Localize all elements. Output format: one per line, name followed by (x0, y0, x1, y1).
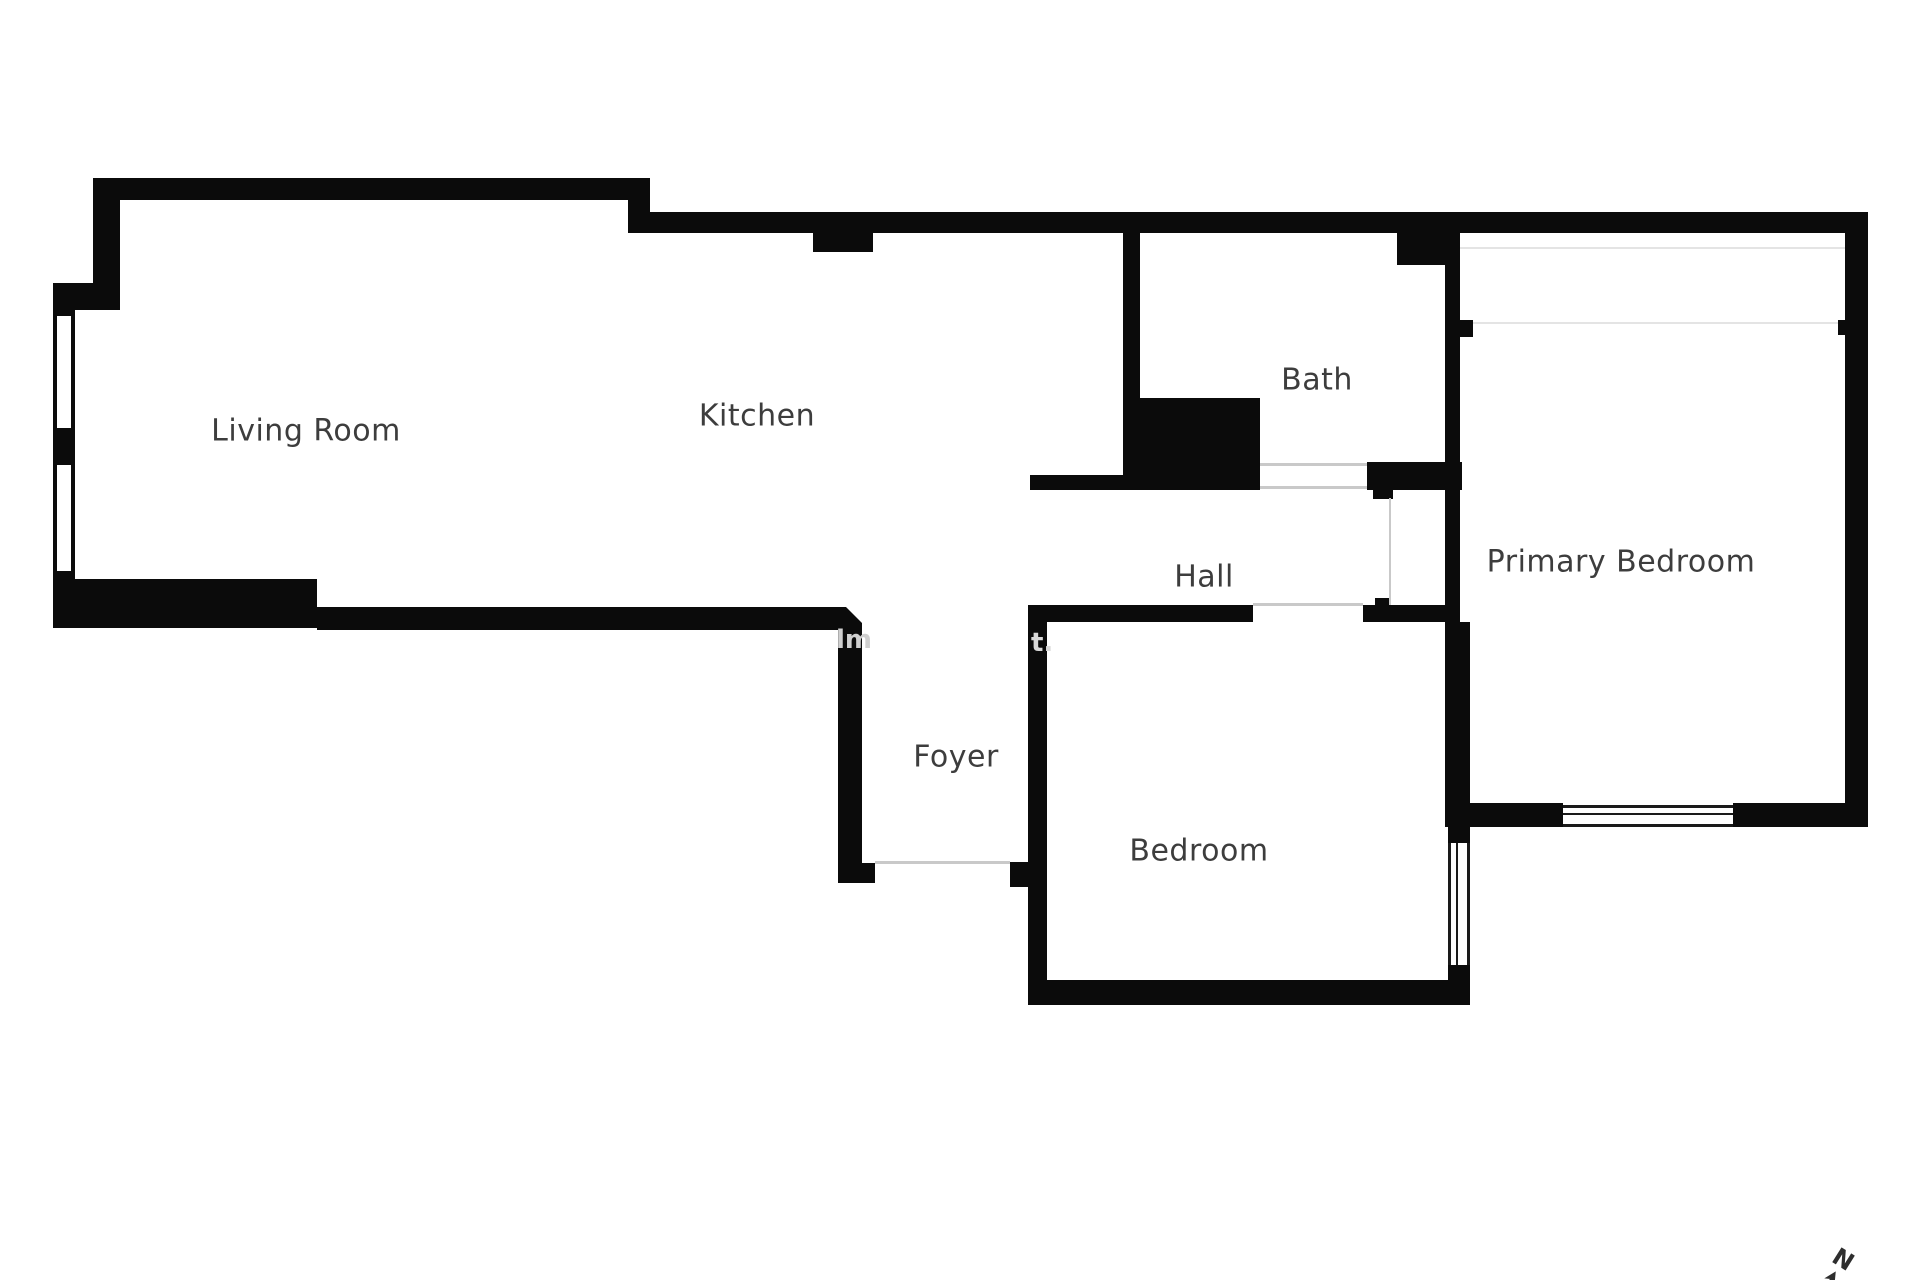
watermark-fragment-lm: lm (836, 627, 872, 653)
threshold-bath-door-bottom (1260, 486, 1367, 489)
primary-bedroom-window (1563, 805, 1733, 827)
window-left-sill-1 (53, 310, 75, 316)
window-left-rail-outer (53, 310, 57, 579)
floor-plan-drawing (0, 0, 1920, 1280)
wall-hall-divider-tab (1373, 490, 1393, 499)
faint-closet-lines (1460, 247, 1845, 324)
wall-primary-bottom-right (1733, 803, 1868, 827)
window-bedroom-right-line (1467, 843, 1470, 965)
bedroom-window (1448, 843, 1470, 965)
window-bedroom-left-line (1448, 843, 1451, 965)
window-primary-bottom-line (1563, 824, 1733, 827)
wall-kitchen-stub (813, 233, 873, 252)
window-primary-mid-line (1563, 813, 1733, 815)
faint-line-upper (1460, 247, 1845, 249)
wall-living-bottom (317, 607, 862, 630)
room-label-primary-bedroom: Primary Bedroom (1487, 545, 1756, 580)
watermark-fragment-t: t. (1031, 630, 1053, 656)
threshold-hall-primary (1389, 498, 1391, 605)
room-label-hall: Hall (1174, 560, 1234, 595)
window-left-sill-2 (53, 428, 75, 435)
window-left-sill-3 (53, 458, 75, 465)
wall-foyer-foot (838, 863, 875, 883)
wall-bedroom-door-tab (1375, 598, 1390, 606)
room-label-foyer: Foyer (913, 740, 999, 775)
window-bedroom-mid-line (1456, 843, 1458, 965)
wall-bedroom-right-upper (1448, 622, 1470, 843)
wall-entry-jamb (1010, 862, 1030, 887)
door-thresholds (875, 463, 1391, 864)
wall-top-step (628, 178, 650, 233)
threshold-entry-door (875, 861, 1010, 864)
wall-living-top (93, 178, 650, 200)
wall-bedroom-window-sill-bottom (1448, 965, 1470, 977)
wall-main-top (650, 212, 1868, 233)
floor-plan-page: Living Room Kitchen Bath Hall Primary Be… (0, 0, 1920, 1280)
threshold-bath-door-top (1260, 463, 1367, 466)
wall-closet-stub-right (1838, 320, 1845, 335)
wall-bottomleft-block (53, 579, 317, 628)
wall-bedroom-window-sill-top (1448, 832, 1470, 843)
room-label-kitchen: Kitchen (699, 399, 815, 434)
wall-bedroom-top-left (1028, 605, 1253, 622)
wall-bath-plumbing-mass (1123, 398, 1260, 490)
threshold-bedroom-door (1253, 603, 1363, 606)
wall-bedroom-left (1028, 605, 1047, 1005)
window-primary-top-line (1563, 805, 1733, 808)
faint-line-closet (1473, 322, 1838, 324)
window-left-rail-inner (71, 310, 75, 579)
wall-hall-top-strip (1030, 475, 1125, 490)
wall-kitchen-bath-divider (1123, 233, 1140, 403)
room-label-bedroom: Bedroom (1129, 834, 1268, 869)
wall-bedroom-bottom (1028, 980, 1470, 1005)
room-label-living-room: Living Room (211, 414, 401, 449)
room-label-bath: Bath (1281, 363, 1353, 398)
wall-topleft-vertical (93, 178, 120, 283)
wall-closet-stub-left (1460, 320, 1473, 337)
wall-topleft-block (53, 283, 120, 310)
walls (53, 178, 1868, 1005)
wall-right-outer (1845, 212, 1868, 827)
window-left-sill-4 (53, 571, 75, 579)
